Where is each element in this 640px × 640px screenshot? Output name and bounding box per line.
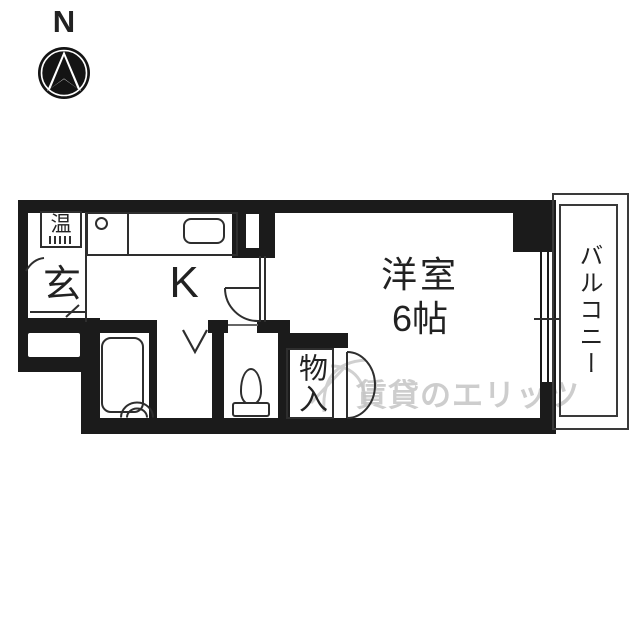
floorplan-page: N 賃貸のエリッツ 温: [0, 0, 640, 640]
washbasin-inner-arc: [127, 409, 147, 418]
closet-door-arc-top: [347, 352, 375, 385]
mainroom-door-arc: [225, 288, 259, 321]
washbasin-outer-arc: [121, 403, 153, 418]
bifold-door-mark: [183, 330, 207, 352]
kitchen-label: K: [162, 260, 206, 306]
plan-symbols: [0, 0, 640, 640]
mainroom-label: 洋室: [360, 256, 480, 294]
closet-door-arc-bottom: [347, 385, 375, 418]
entrance-label: 玄: [40, 266, 84, 306]
entrance-step-tick: [66, 305, 79, 317]
mainroom-size-label: 6帖: [360, 300, 480, 338]
